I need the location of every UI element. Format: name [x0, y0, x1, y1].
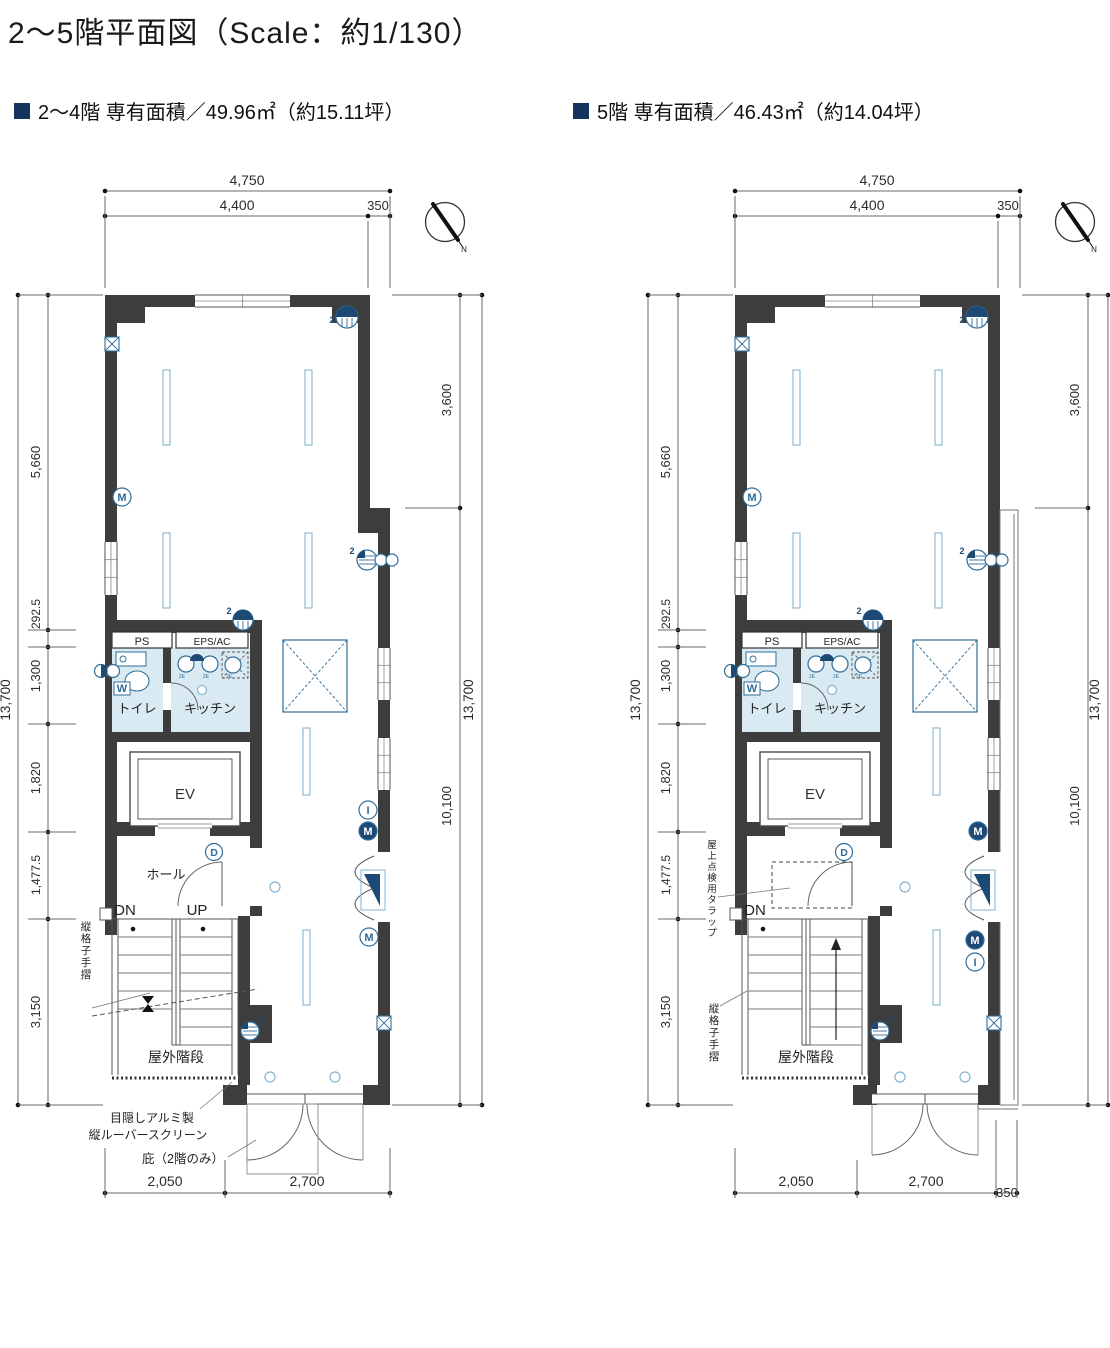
wall	[250, 832, 262, 848]
room-label-hall: ホール	[146, 867, 185, 882]
fixture-tag: 2E	[833, 674, 840, 680]
dim-dot	[1018, 189, 1023, 194]
fan-icon	[985, 554, 997, 566]
svg-text:2: 2	[349, 546, 354, 556]
north-arrow-icon: N	[1056, 203, 1098, 255]
fixture-tag: 2E	[203, 674, 210, 680]
svg-text:M: M	[363, 826, 372, 838]
wall	[880, 620, 892, 732]
svg-text:2: 2	[329, 315, 334, 325]
svg-text:2: 2	[959, 315, 964, 325]
annotation-handrail: 縦格子手摺	[709, 1002, 720, 1063]
fixture-tag: 2E	[179, 674, 186, 680]
svg-text:M: M	[364, 932, 373, 944]
room-label-kitchen: キッチン	[814, 701, 866, 716]
water-label: W	[117, 683, 128, 695]
svg-text:N: N	[461, 245, 467, 254]
fan-icon	[386, 554, 398, 566]
svg-text:2,700: 2,700	[289, 1173, 324, 1189]
light-strip	[935, 533, 942, 608]
annotation-louver-1: 目隠しアルミ製	[110, 1111, 194, 1125]
ledge-outline	[1000, 510, 1018, 1105]
canopy-outline	[247, 1104, 318, 1174]
downlight-icon	[198, 686, 207, 695]
wall	[735, 295, 747, 935]
plan-5f-drawing: 4,7504,40035013,7005,660292.51,3001,8201…	[628, 172, 1110, 1200]
annotations: 縦格子手摺目隠しアルミ製縦ルーバースクリーン庇（2階のみ）	[81, 920, 256, 1166]
wall	[363, 1085, 390, 1105]
dim-left-overall: 13,700	[0, 679, 13, 720]
svg-text:D: D	[840, 847, 848, 859]
svg-text:M: M	[970, 935, 979, 947]
stair-label-dn: DN	[114, 902, 136, 919]
dim-left-seg: 3,150	[28, 996, 43, 1029]
light-strip	[305, 533, 312, 608]
annotation-canopy: 庇（2階のみ）	[142, 1151, 224, 1166]
svg-text:2: 2	[856, 606, 861, 616]
downlight-icon	[900, 882, 910, 892]
dim-dot	[131, 927, 136, 932]
wall	[978, 1085, 1000, 1105]
svg-text:M: M	[973, 826, 982, 838]
annotation-louver-2: 縦ルーバースクリーン	[89, 1128, 208, 1142]
kitchen-fixture-icon	[855, 657, 871, 673]
dim-left-seg: 1,820	[658, 762, 673, 795]
wall	[105, 295, 117, 935]
light-strip	[303, 930, 310, 1005]
dim-dot	[388, 189, 393, 194]
room-label-outdoor-stairs: 屋外階段	[148, 1049, 204, 1065]
dim-left-seg: 292.5	[659, 599, 673, 629]
svg-text:I: I	[366, 805, 369, 817]
dim-left-seg: 292.5	[29, 599, 43, 629]
light-strip	[305, 370, 312, 445]
light-strip	[933, 728, 940, 795]
wall	[880, 906, 892, 916]
light-strip	[793, 533, 800, 608]
fixtures: W2E2E2E2222MMMID	[725, 306, 1009, 1155]
light-strip	[163, 533, 170, 608]
light-strip	[793, 370, 800, 445]
dim-dot	[761, 927, 766, 932]
fan-icon	[107, 665, 120, 678]
dim-left-seg: 1,820	[28, 762, 43, 795]
light-strip	[933, 930, 940, 1005]
dim-left-seg: 3,150	[658, 996, 673, 1029]
floor-plan-canvas: 4,7504,40035013,7005,660292.51,3001,8201…	[0, 0, 1110, 1348]
wall	[250, 906, 262, 916]
fan-icon	[737, 665, 750, 678]
light-strip	[303, 728, 310, 795]
svg-text:2: 2	[258, 1013, 263, 1023]
dim-dot	[996, 214, 1001, 219]
dim-top-main: 4,400	[849, 197, 884, 213]
svg-text:I: I	[973, 957, 976, 969]
svg-text:350: 350	[996, 1185, 1018, 1200]
dim-left-seg: 1,477.5	[29, 855, 43, 895]
room-label-ev: EV	[175, 786, 195, 803]
svg-text:N: N	[1091, 245, 1097, 254]
svg-text:2: 2	[888, 1013, 893, 1023]
wall	[880, 742, 892, 832]
dim-top-main: 4,400	[219, 197, 254, 213]
light-strip	[935, 370, 942, 445]
fixture-tag: 2E	[809, 674, 816, 680]
svg-text:2,050: 2,050	[778, 1173, 813, 1189]
fixture-tag: 2E	[856, 674, 863, 680]
svg-text:2: 2	[959, 546, 964, 556]
wall	[250, 620, 262, 732]
room-label-toilet: トイレ	[747, 701, 786, 716]
kitchen-fixture-icon	[202, 656, 218, 672]
wall	[358, 295, 370, 533]
dim-dot	[733, 189, 738, 194]
downlight-icon	[265, 1072, 275, 1082]
dim-dot	[103, 189, 108, 194]
dim-dot	[366, 214, 371, 219]
dim-left-seg: 5,660	[28, 446, 43, 479]
dim-left-seg: 1,300	[28, 660, 43, 693]
room-label-eps-ac: EPS/AC	[824, 637, 861, 648]
room-label-eps-ac: EPS/AC	[194, 637, 231, 648]
stair-label-dn: DN	[744, 902, 766, 919]
floorplan-sheet: 2〜5階平面図（Scale：約1/130） 2〜4階 専有面積／49.96㎡（約…	[0, 0, 1110, 1348]
room-label-kitchen: キッチン	[184, 701, 236, 716]
downlight-icon	[960, 1072, 970, 1082]
stair-label-up: UP	[187, 902, 208, 919]
wall	[250, 742, 262, 832]
svg-text:2: 2	[226, 606, 231, 616]
dim-left-seg: 1,300	[658, 660, 673, 693]
dim-right-upper: 3,600	[439, 384, 454, 417]
dim-left-overall: 13,700	[628, 679, 643, 720]
wall	[223, 1085, 247, 1105]
svg-text:2,700: 2,700	[908, 1173, 943, 1189]
dim-top-offset: 350	[997, 198, 1019, 213]
light-strip	[163, 370, 170, 445]
dim-top-offset: 350	[367, 198, 389, 213]
kitchen-fixture-icon	[225, 657, 241, 673]
downlight-icon	[895, 1072, 905, 1082]
shutter-triangle-icon	[364, 874, 380, 906]
svg-text:D: D	[210, 847, 218, 859]
dim-dot	[201, 927, 206, 932]
fan-icon	[375, 554, 387, 566]
fan-icon	[996, 554, 1008, 566]
dim-right-lower: 10,100	[1067, 786, 1082, 826]
svg-text:M: M	[117, 492, 126, 504]
downlight-icon	[270, 882, 280, 892]
svg-text:M: M	[747, 492, 756, 504]
water-label: W	[747, 683, 758, 695]
dim-top-total: 4,750	[229, 172, 264, 188]
wall	[868, 916, 880, 1085]
annotation-roof-hatch: 屋上点検用タラップ	[707, 840, 717, 939]
dim-top-total: 4,750	[859, 172, 894, 188]
dim-right-overall: 13,700	[1087, 679, 1102, 720]
annotation-handrail: 縦格子手摺	[81, 920, 92, 981]
annotations: 屋上点検用タラップ縦格子手摺	[707, 840, 790, 1063]
svg-text:2,050: 2,050	[147, 1173, 182, 1189]
downlight-icon	[330, 1072, 340, 1082]
wall	[238, 916, 250, 1085]
roof-hatch-box	[772, 862, 852, 908]
room-label-ps: PS	[135, 636, 150, 648]
dim-left-seg: 5,660	[658, 446, 673, 479]
dim-right-overall: 13,700	[461, 679, 476, 720]
wall	[880, 832, 892, 848]
room-label-ev: EV	[805, 786, 825, 803]
room-label-outdoor-stairs: 屋外階段	[778, 1049, 834, 1065]
dim-right-upper: 3,600	[1067, 384, 1082, 417]
fixture-tag: 2E	[226, 674, 233, 680]
plan-2-4f-drawing: 4,7504,40035013,7005,660292.51,3001,8201…	[0, 172, 484, 1198]
room-label-toilet: トイレ	[117, 701, 156, 716]
room-label-ps: PS	[765, 636, 780, 648]
dim-left-seg: 1,477.5	[659, 855, 673, 895]
downlight-icon	[828, 686, 837, 695]
north-arrow-icon: N	[426, 203, 468, 255]
kitchen-fixture-icon	[832, 656, 848, 672]
dim-right-lower: 10,100	[439, 786, 454, 826]
